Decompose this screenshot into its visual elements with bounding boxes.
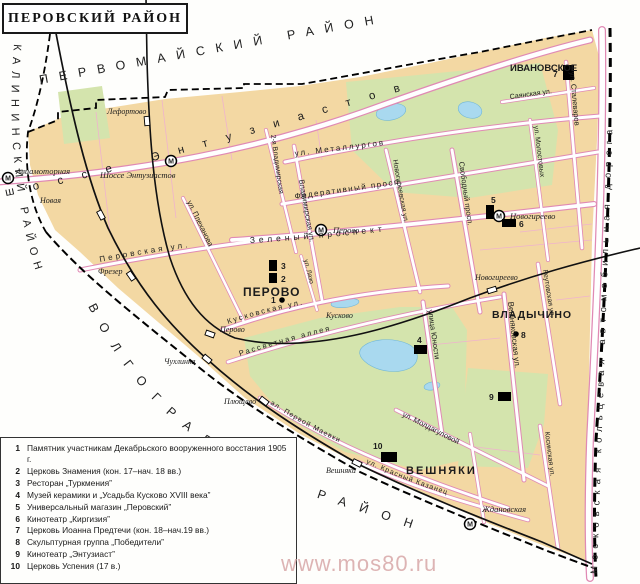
legend-item-text: Скульптурная группа „Победители” bbox=[27, 537, 290, 548]
neighborhood-perovo: ПЕРОВО bbox=[243, 285, 301, 299]
legend-item-number: 9 bbox=[5, 549, 20, 560]
poi-rect-3 bbox=[269, 260, 277, 271]
metro-label-perovo: Перово bbox=[332, 225, 359, 235]
station-plyushchevo: Плющево bbox=[223, 397, 256, 406]
poi-num-9: 9 bbox=[489, 392, 494, 402]
park-northwest bbox=[58, 86, 110, 144]
neighborhood-vladychino: ВЛАДЫЧИНО bbox=[492, 309, 572, 321]
legend-item-number: 5 bbox=[5, 502, 20, 513]
legend-item-text: Церковь Иоанна Предтечи (кон. 18–нач.19 … bbox=[27, 525, 290, 536]
station-frezer: Фрезер bbox=[98, 267, 123, 276]
legend-item-text: Ресторан „Туркмения” bbox=[27, 478, 290, 489]
legend-item-number: 2 bbox=[5, 466, 20, 477]
station-novaya: Новая bbox=[39, 196, 61, 205]
legend-item-number: 7 bbox=[5, 525, 20, 536]
poi-rect-2 bbox=[269, 273, 277, 283]
legend-item: 7 Церковь Иоанна Предтечи (кон. 18–нач.1… bbox=[5, 525, 290, 536]
neighborhood-veshnyaki: ВЕШНЯКИ bbox=[406, 465, 477, 477]
metro-label-shosse-entuziastov: Шоссе Энтузиастов bbox=[99, 170, 176, 180]
legend-item-text: Кинотеатр „Киргизия” bbox=[27, 514, 290, 525]
metro-icon-aviamotornaya: М bbox=[3, 173, 14, 184]
legend-item-text: Музей керамики и „Усадьба Кусково XVIII … bbox=[27, 490, 290, 501]
legend-item: 5 Универсальный магазин „Перовский” bbox=[5, 502, 290, 513]
station-perovo: Перово bbox=[219, 325, 245, 334]
metro-label-aviamotornaya: Авиамоторная bbox=[15, 166, 70, 176]
legend-panel: 1 Памятник участникам Декабрьского воору… bbox=[0, 437, 297, 584]
legend-item: 1 Памятник участникам Декабрьского воору… bbox=[5, 443, 290, 465]
map-title-box: ПЕРОВСКИЙ РАЙОН bbox=[2, 3, 188, 34]
metro-icon-zhdanovskaya: М bbox=[465, 519, 476, 530]
legend-item-text: Памятник участникам Декабрьского вооруже… bbox=[27, 443, 290, 465]
legend-item: 10 Церковь Успения (17 в.) bbox=[5, 561, 290, 572]
svg-text:М: М bbox=[496, 214, 502, 221]
legend-item-number: 6 bbox=[5, 514, 20, 525]
poi-num-2: 2 bbox=[281, 274, 286, 284]
watermark: www.mos80.ru bbox=[281, 551, 437, 577]
legend-item-number: 4 bbox=[5, 490, 20, 501]
poi-rect-9 bbox=[498, 392, 511, 401]
poi-num-10: 10 bbox=[373, 441, 383, 451]
svg-text:М: М bbox=[5, 176, 11, 183]
legend-item-number: 3 bbox=[5, 478, 20, 489]
poi-rect-5 bbox=[486, 205, 494, 219]
poi-rect-4 bbox=[414, 345, 427, 354]
label-kuskovo-estate: Кусково bbox=[325, 311, 353, 320]
poi-rect-10 bbox=[381, 452, 397, 462]
legend-item-text: Церковь Успения (17 в.) bbox=[27, 561, 290, 572]
metro-label-zhdanovskaya: Ждановская bbox=[481, 504, 526, 514]
station-chukhlinka: Чухлинка bbox=[164, 357, 196, 366]
poi-num-3: 3 bbox=[281, 261, 286, 271]
station-novogireevo: Новогиреево bbox=[474, 273, 518, 282]
legend-item-text: Церковь Знамения (кон. 17–нач. 18 вв.) bbox=[27, 466, 290, 477]
station-lefortovo: Лефортово bbox=[106, 107, 146, 116]
legend-item: 2 Церковь Знамения (кон. 17–нач. 18 вв.) bbox=[5, 466, 290, 477]
legend-item: 8 Скульптурная группа „Победители” bbox=[5, 537, 290, 548]
legend-item: 6 Кинотеатр „Киргизия” bbox=[5, 514, 290, 525]
legend-item-text: Кинотеатр „Энтузиаст” bbox=[27, 549, 290, 560]
poi-num-8: 8 bbox=[521, 330, 526, 340]
legend-item: 3 Ресторан „Туркмения” bbox=[5, 478, 290, 489]
poi-num-4: 4 bbox=[417, 335, 422, 345]
legend-item-text: Универсальный магазин „Перовский” bbox=[27, 502, 290, 513]
legend-item-number: 8 bbox=[5, 537, 20, 548]
legend-item: 9 Кинотеатр „Энтузиаст” bbox=[5, 549, 290, 560]
legend-item-number: 1 bbox=[5, 443, 20, 465]
legend-item-number: 10 bbox=[5, 561, 20, 572]
neighborhood-ivanovskoe: ИВАНОВСКОЕ bbox=[510, 63, 577, 74]
legend-item: 4 Музей керамики и „Усадьба Кусково XVII… bbox=[5, 490, 290, 501]
map-title: ПЕРОВСКИЙ РАЙОН bbox=[8, 11, 182, 27]
map-page: М М М М М 1 2 3 4 5 6 7 bbox=[0, 0, 640, 584]
svg-text:М: М bbox=[467, 522, 473, 529]
station-veshnyaki: Вешняки bbox=[326, 466, 356, 475]
poi-num-5: 5 bbox=[491, 195, 496, 205]
metro-label-novogireevo: Новогиреево bbox=[509, 211, 555, 221]
